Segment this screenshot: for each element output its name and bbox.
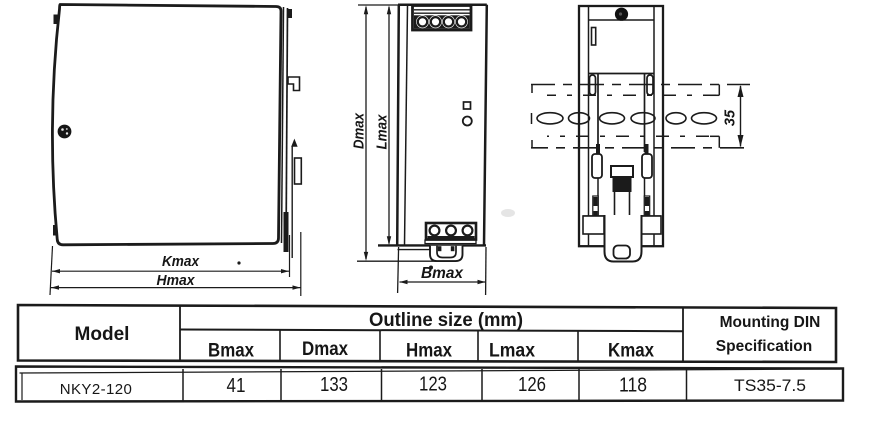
svg-text:Lmax: Lmax <box>489 340 535 362</box>
svg-text:Hmax: Hmax <box>406 340 452 362</box>
svg-text:Mounting DIN: Mounting DIN <box>720 314 821 331</box>
svg-text:Bmax: Bmax <box>421 265 464 282</box>
svg-text:Kmax: Kmax <box>608 340 654 362</box>
svg-text:118: 118 <box>619 375 647 397</box>
svg-text:Specification: Specification <box>716 338 812 355</box>
svg-text:133: 133 <box>320 374 348 396</box>
svg-text:Dmax: Dmax <box>351 112 368 149</box>
svg-text:Outline size (mm): Outline size (mm) <box>369 310 523 331</box>
svg-text:35: 35 <box>723 109 739 126</box>
svg-text:126: 126 <box>518 374 546 396</box>
svg-text:Bmax: Bmax <box>208 340 254 362</box>
svg-text:41: 41 <box>227 375 246 397</box>
svg-text:Hmax: Hmax <box>157 272 196 289</box>
svg-text:Lmax: Lmax <box>374 114 391 150</box>
svg-text:Kmax: Kmax <box>162 253 200 270</box>
svg-text:123: 123 <box>419 374 447 396</box>
svg-text:NKY2-120: NKY2-120 <box>60 381 132 398</box>
svg-text:Model: Model <box>75 324 130 345</box>
svg-text:Dmax: Dmax <box>302 338 348 360</box>
svg-text:TS35-7.5: TS35-7.5 <box>734 376 806 395</box>
